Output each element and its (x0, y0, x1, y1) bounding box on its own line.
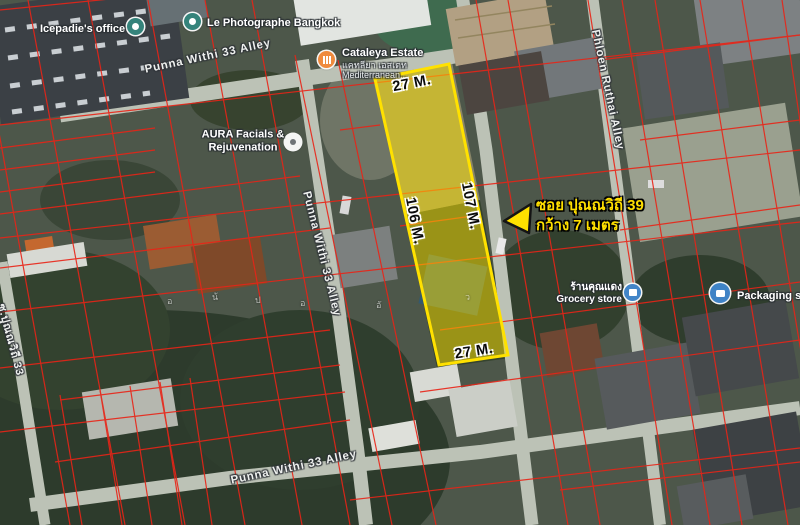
annotation-soi-width: กว้าง 7 เมตร (536, 217, 619, 234)
annotation-soi-name: ซอย ปุณณวิถี 39 (536, 197, 644, 214)
poi-name-line2: Rejuvenation (202, 141, 285, 154)
poi-category: Grocery store (556, 294, 622, 306)
store-pin-icon[interactable] (624, 284, 641, 301)
shopping-bag-icon (629, 289, 637, 296)
briefcase-pin-icon[interactable] (710, 283, 730, 303)
poi-name-line1: AURA Facials & (202, 128, 285, 141)
small-map-glyph: น้ (212, 292, 218, 302)
poi-name: Cataleya Estate (342, 47, 423, 60)
poi-name-thai: ร้านคุณแดง (556, 282, 622, 294)
restaurant-pin-icon[interactable] (318, 51, 335, 68)
poi-label-packaging[interactable]: Packaging sup (737, 290, 800, 303)
small-map-glyph: อ (167, 296, 172, 306)
poi-label-le-photographe[interactable]: Le Photographe Bangkok (207, 17, 340, 30)
map-canvas[interactable]: Icepadie's office Le Photographe Bangkok… (0, 0, 800, 525)
poi-dot-icon (290, 139, 296, 145)
small-map-glyph: ป (255, 295, 261, 305)
poi-label-icepadies-office[interactable]: Icepadie's office (40, 23, 125, 36)
poi-dot-icon (132, 23, 139, 30)
fork-knife-icon (326, 56, 328, 64)
poi-name-thai: แคทลียา เอสเตท (342, 60, 423, 70)
poi-dot-icon (189, 18, 196, 25)
generic-white-pin-icon[interactable] (285, 134, 301, 150)
small-map-glyph: ว (465, 292, 470, 302)
poi-label-aura[interactable]: AURA Facials & Rejuvenation (202, 128, 285, 153)
generic-teal-pin-icon[interactable] (184, 13, 201, 30)
small-map-glyph: อั (376, 300, 381, 310)
poi-label-grocery[interactable]: ร้านคุณแดง Grocery store (556, 282, 622, 305)
small-map-glyph: อ (300, 298, 305, 308)
briefcase-icon (716, 290, 725, 297)
generic-teal-pin-icon[interactable] (127, 18, 144, 35)
